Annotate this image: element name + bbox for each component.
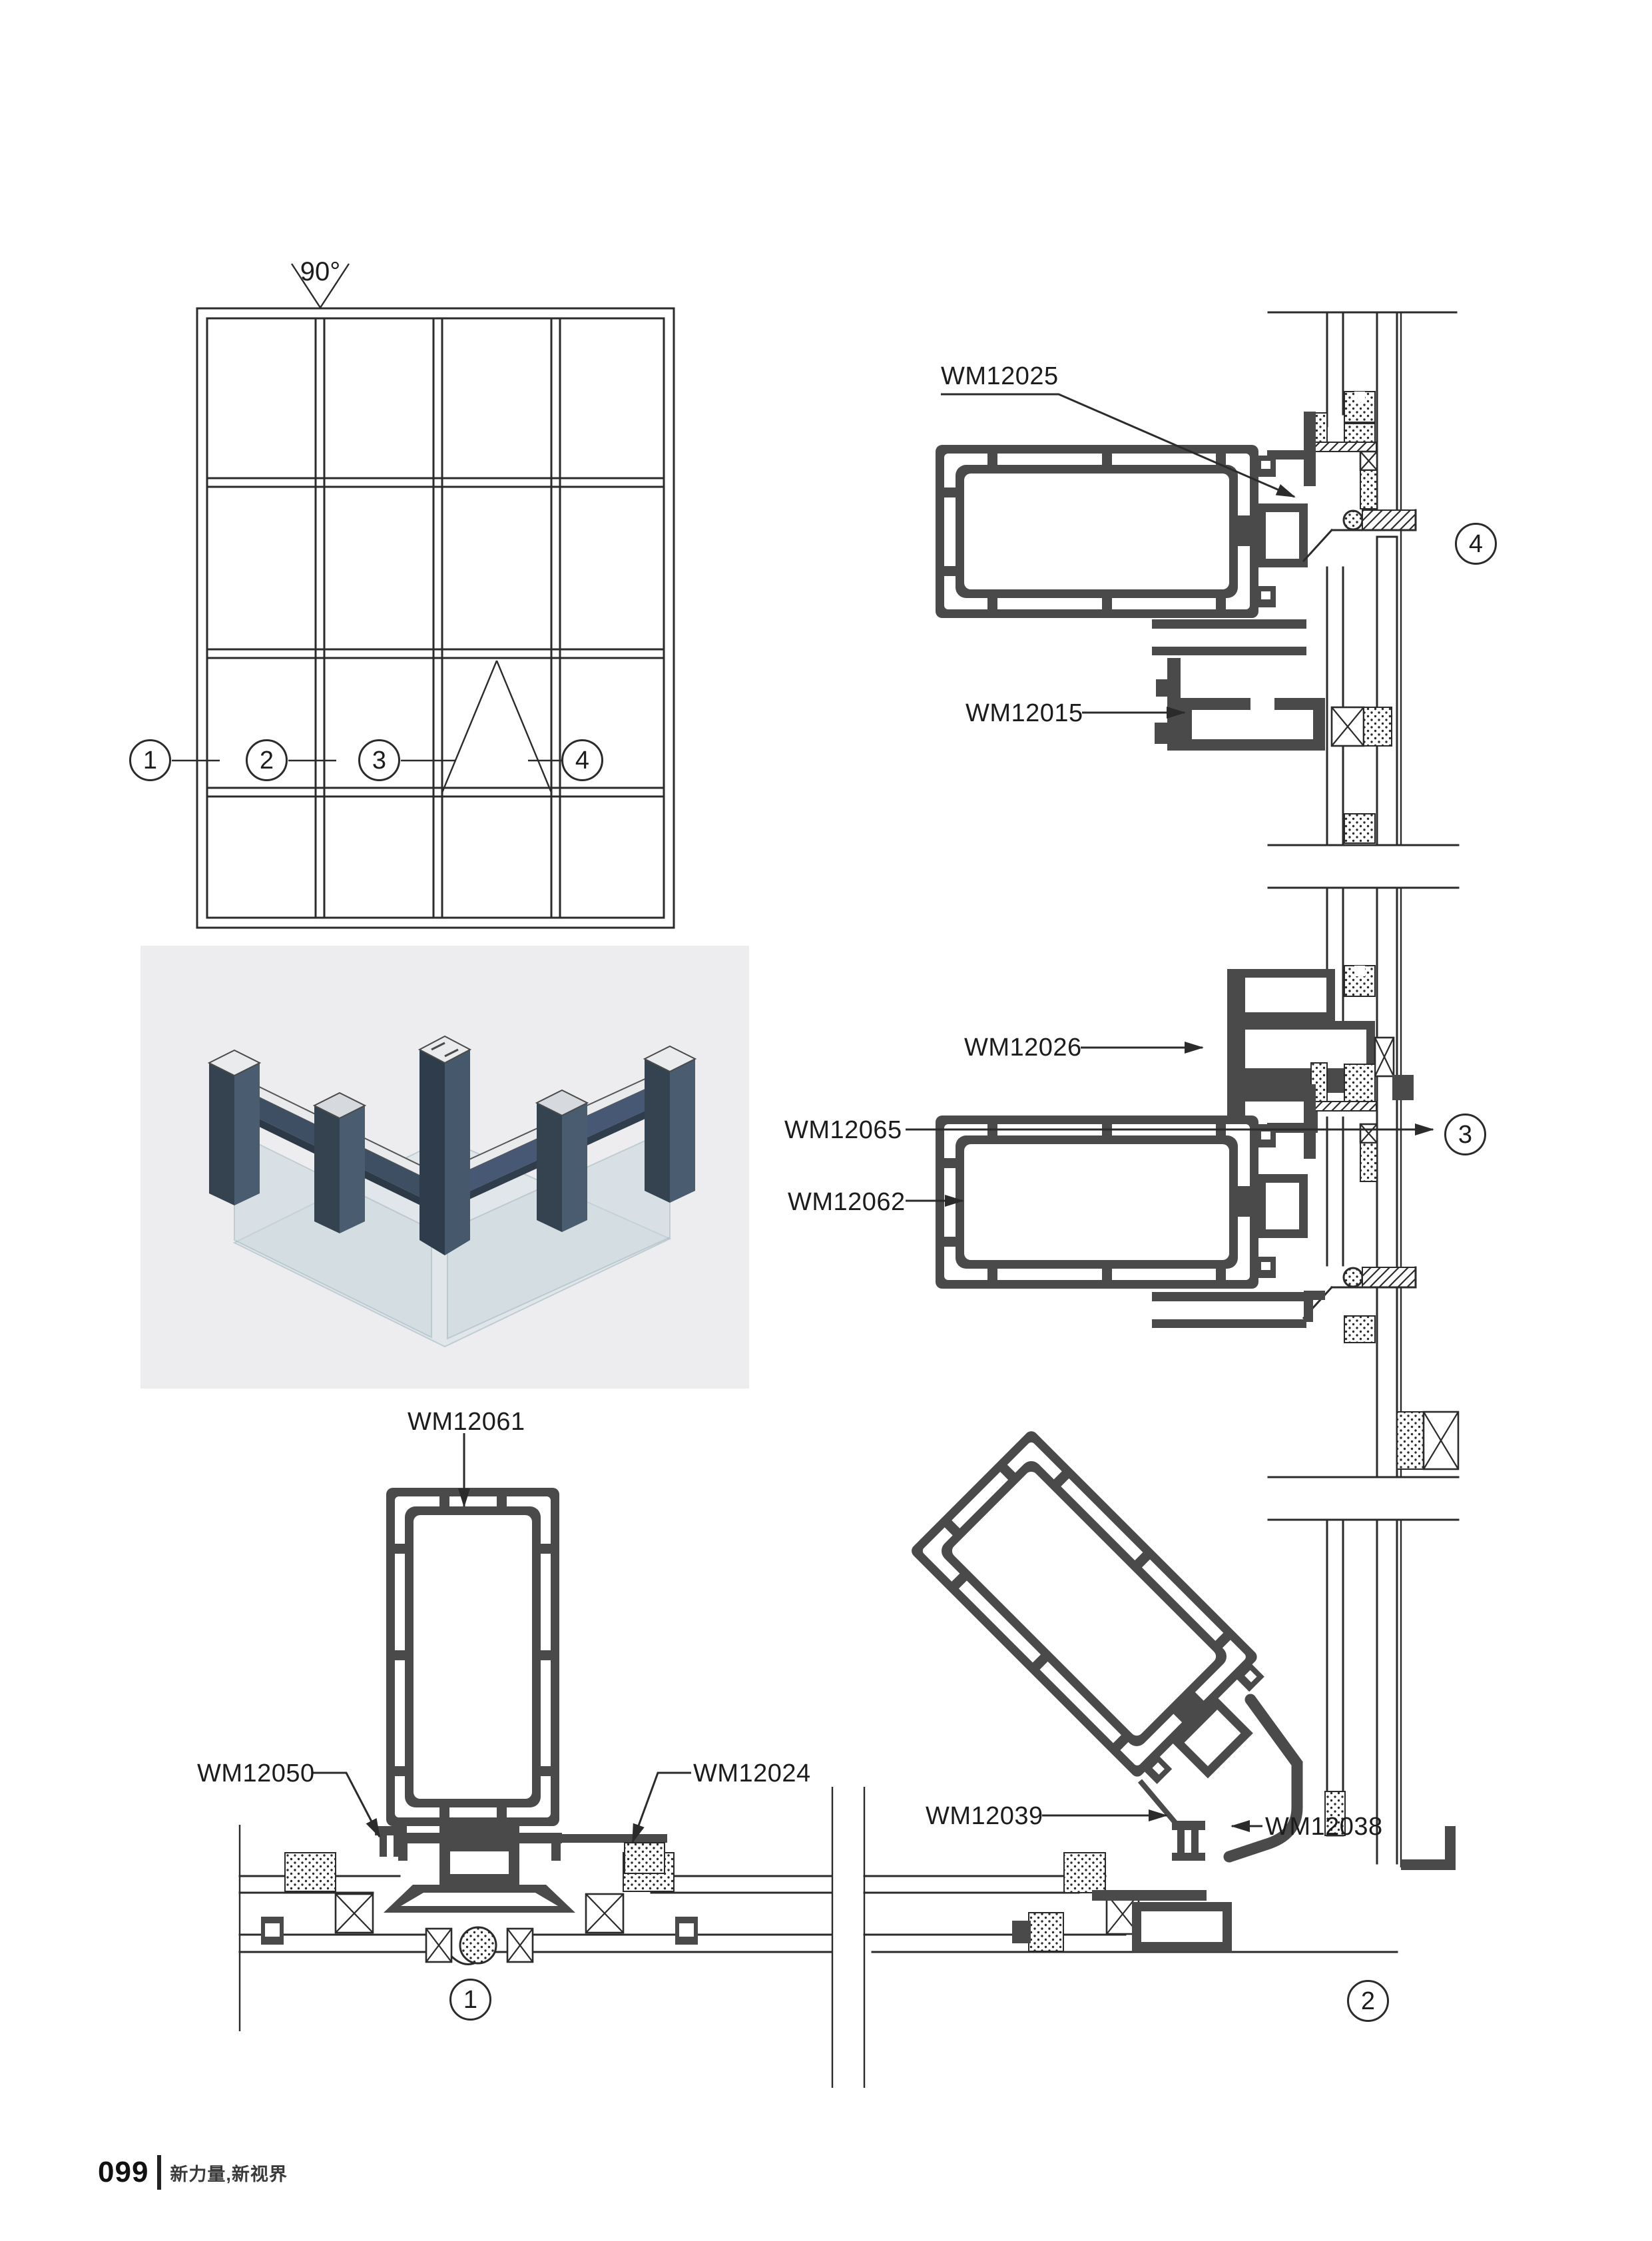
callout-number: 2: [1361, 1989, 1375, 2014]
callout-detail-4: 4: [1455, 523, 1497, 565]
part-label-wm12024: WM12024: [693, 1761, 811, 1786]
callout-number: 3: [1458, 1122, 1472, 1147]
part-label-wm12039: WM12039: [926, 1803, 1043, 1829]
callout-number: 4: [1469, 531, 1483, 557]
callout-number: 3: [372, 748, 386, 773]
detail-4-section: [936, 312, 1456, 845]
callout-detail-2: 2: [1347, 1980, 1389, 2022]
catalog-page: 90° WM12025 WM12015 WM12026 WM12065 WM12…: [0, 0, 1652, 2241]
angle-label: 90°: [280, 258, 361, 285]
part-label-wm12062: WM12062: [788, 1189, 906, 1215]
part-label-wm12025: WM12025: [941, 364, 1059, 389]
callout-number: 2: [260, 748, 274, 773]
isometric-render: [140, 946, 749, 1389]
openable-vent-symbol: [442, 661, 551, 793]
callout-number: 1: [463, 1987, 477, 2013]
detail-3-section: [936, 845, 1458, 1477]
page-footer: 099 新力量,新视界: [98, 2155, 288, 2190]
part-label-wm12065: WM12065: [784, 1118, 902, 1143]
wm12015-profile: [1155, 658, 1325, 751]
callout-number: 4: [575, 748, 589, 773]
part-label-wm12061: WM12061: [408, 1409, 525, 1435]
tilted-sash-profile: [909, 1429, 1294, 1814]
wm12039-clip: [1172, 1821, 1205, 1861]
callout-number: 1: [143, 748, 157, 773]
callout-detail-3: 3: [1444, 1114, 1486, 1155]
elevation-diagram: [172, 264, 674, 928]
part-label-wm12050: WM12050: [197, 1761, 315, 1786]
callout-elevation-4: 4: [561, 739, 603, 781]
footer-tagline: 新力量,新视界: [170, 2160, 288, 2186]
callout-elevation-2: 2: [246, 739, 288, 781]
footer-divider: [157, 2155, 161, 2190]
wm12061-profile: [386, 1488, 559, 1826]
callout-elevation-1: 1: [129, 739, 171, 781]
callout-detail-1: 1: [449, 1979, 491, 2021]
part-label-wm12026: WM12026: [964, 1035, 1082, 1060]
part-label-wm12038: WM12038: [1265, 1814, 1383, 1839]
callout-elevation-3: 3: [358, 739, 400, 781]
part-label-wm12015: WM12015: [965, 701, 1083, 726]
page-number: 099: [98, 2156, 148, 2189]
